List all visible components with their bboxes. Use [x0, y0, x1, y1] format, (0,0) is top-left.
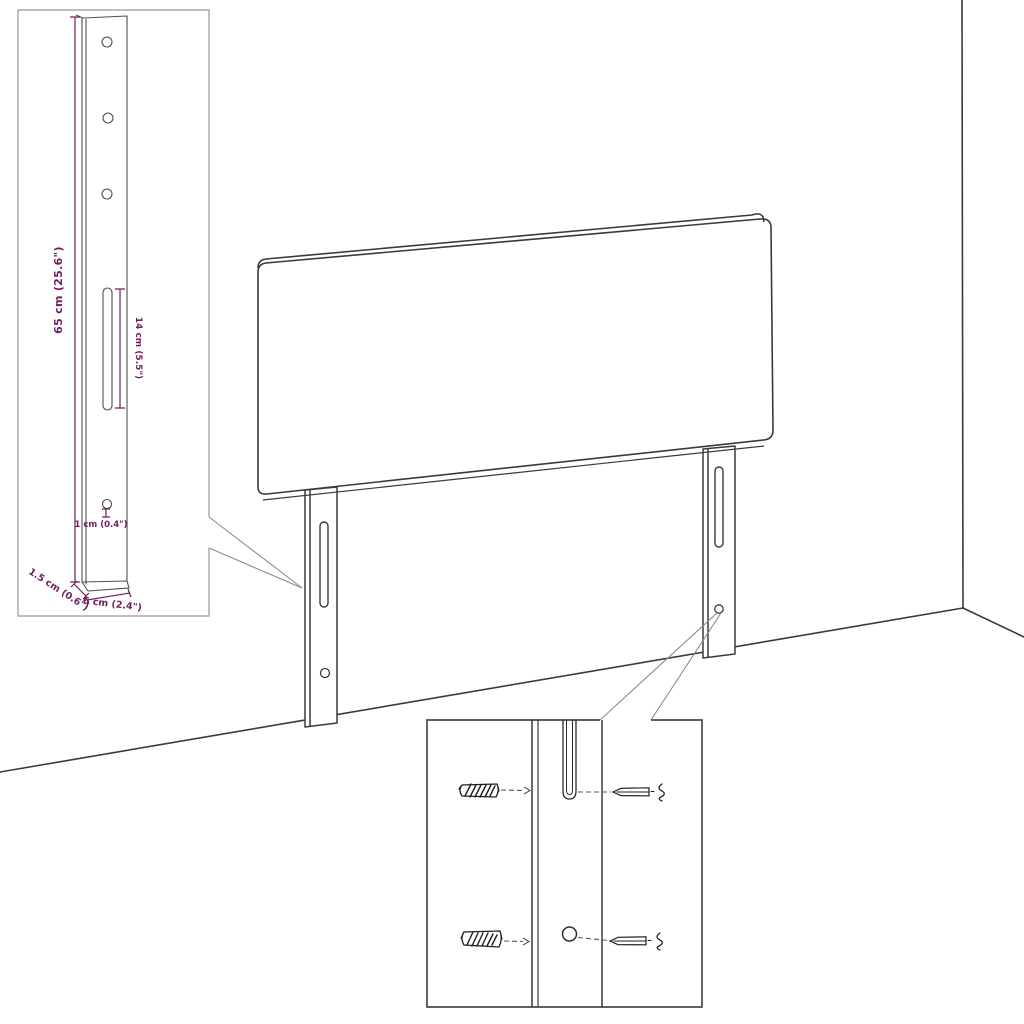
headboard-panel	[258, 214, 773, 500]
right-leg-slot	[715, 467, 723, 547]
product-dimension-diagram: 65 cm (25.6") 14 cm (5.5") 1 cm (0.4") 1…	[0, 0, 1024, 1024]
label-hole-diameter: 1 cm (0.4")	[75, 520, 128, 530]
label-slot-length: 14 cm (5.5")	[133, 317, 143, 379]
hardware-frame	[427, 720, 702, 1007]
headboard-main-view	[258, 214, 773, 727]
headboard-right-leg	[703, 446, 735, 658]
diagram-svg: 65 cm (25.6") 14 cm (5.5") 1 cm (0.4") 1…	[0, 0, 1024, 1024]
headboard-left-leg	[305, 487, 337, 727]
right-leg-hole	[715, 605, 723, 613]
inset-callout-wedge	[209, 517, 302, 588]
left-leg-slot	[320, 522, 328, 607]
hardware-detail-inset	[427, 613, 721, 1007]
floor-line-right	[963, 608, 1024, 637]
left-leg-hole	[321, 669, 330, 678]
label-leg-height: 65 cm (25.6")	[52, 246, 65, 334]
wall-corner-line	[962, 0, 963, 608]
